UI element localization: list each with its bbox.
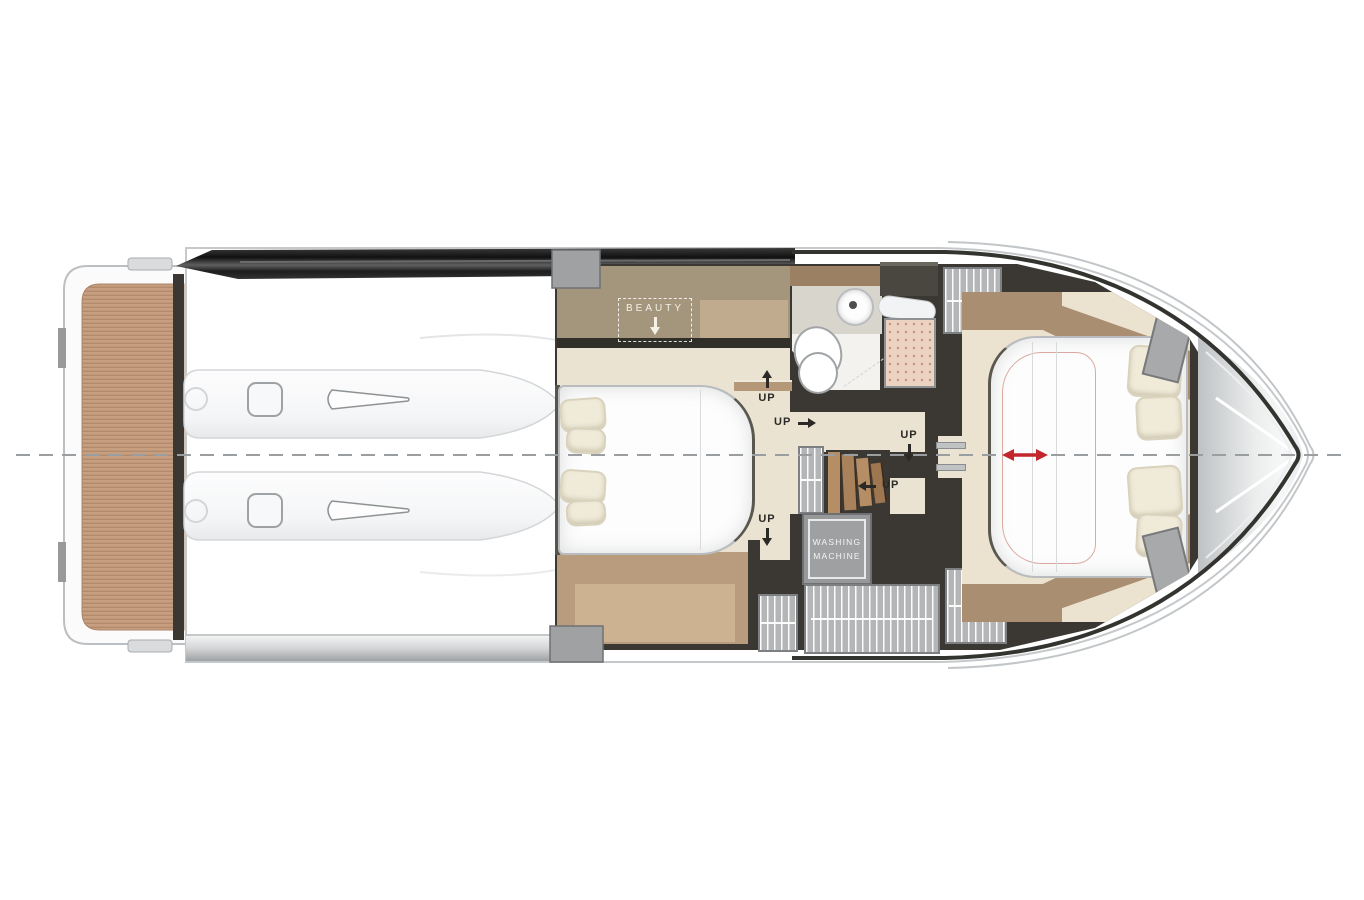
red-double-arrow — [1002, 449, 1048, 461]
deck-hatch-bottom — [550, 626, 603, 662]
deck-hatch-top — [552, 250, 600, 288]
overlay-artwork — [0, 0, 1364, 900]
floor-plan: WASHING MACHINE BEAUTY — [0, 0, 1364, 900]
